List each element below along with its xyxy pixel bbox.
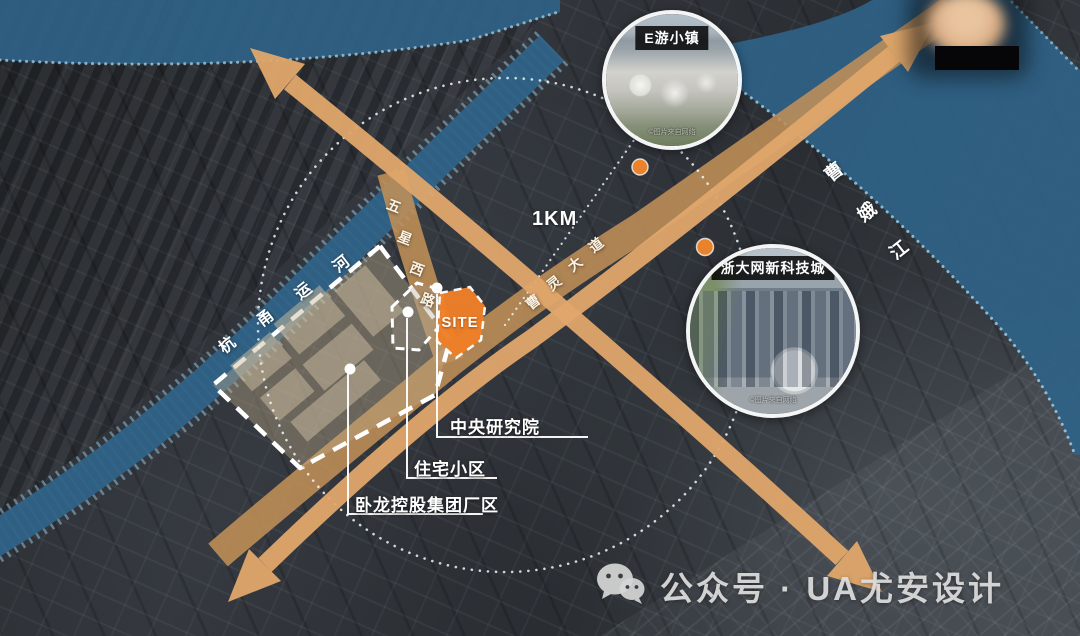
water-strip [0,0,560,64]
site-label: SITE [434,314,486,331]
blurred-logo-bar [935,46,1019,70]
blurred-logo [878,0,1038,84]
inset-etown-credit: ©图片来自网络 [648,127,695,137]
scale-label: 1KM [532,208,577,231]
callout-research: 中央研究院 [450,413,540,438]
wechat-icon [594,558,646,608]
inset-etown-title: E游小镇 [635,26,708,50]
map-background: 杭 甬 运 河 曹 娥 江 五 星 西 路 曹 灵 大 道 1KM SITE 中… [0,0,1080,636]
callout-factory: 卧龙控股集团厂区 [355,491,499,516]
inset-tech-city-credit: ©图片来自网络 [749,395,796,405]
watermark-text: 公众号 · UA尤安设计 [660,562,1004,610]
inset-tech-city-title: 浙大网新科技城 [712,256,835,280]
marker-dot-etown [632,159,648,175]
inset-etown: E游小镇 ©图片来自网络 [602,10,742,150]
inset-tech-city: 浙大网新科技城 ©图片来自网络 [686,244,860,418]
callout-residential: 住宅小区 [414,455,486,480]
